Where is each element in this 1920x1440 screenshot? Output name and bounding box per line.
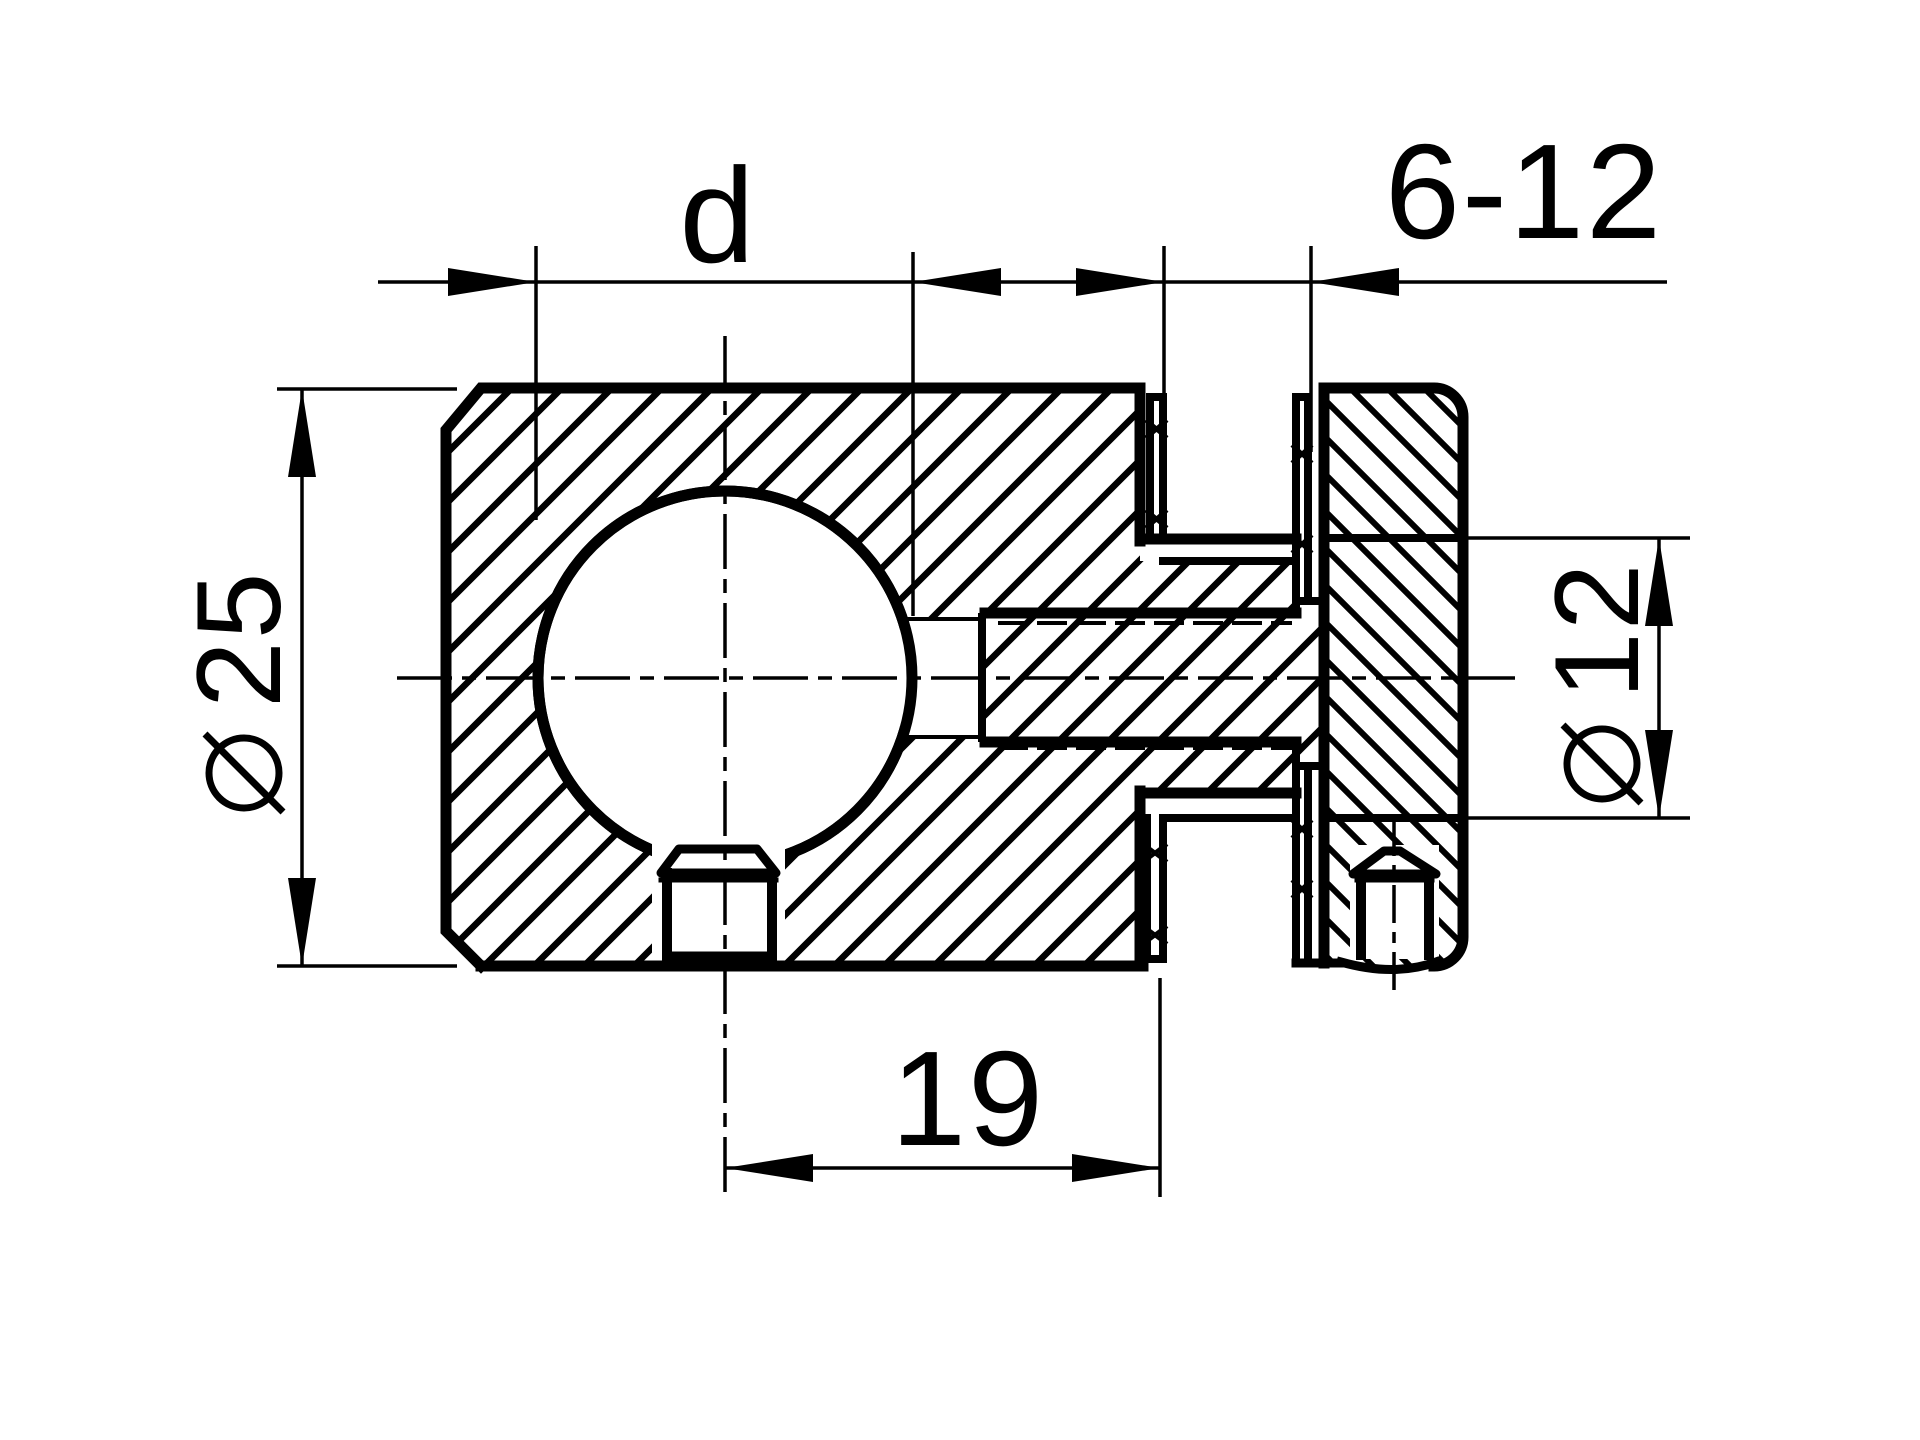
diameter-symbol-icon [1563, 725, 1641, 803]
dim-value-25: 25 [172, 571, 306, 708]
engineering-drawing-page: d 6-12 19 25 12 [0, 0, 1920, 1440]
dim-label-body-diameter: 25 [172, 571, 306, 812]
diameter-symbol-icon [205, 734, 283, 812]
dim-label-rod-diameter: 12 [1530, 562, 1664, 803]
dim-label-bore-d: d [679, 140, 756, 291]
dim-label-offset-19: 19 [891, 1023, 1045, 1174]
cross-clamp-section-drawing: d 6-12 19 25 12 [0, 0, 1920, 1440]
dim-label-clamp-range: 6-12 [1385, 116, 1663, 267]
dim-value-12: 12 [1530, 562, 1664, 699]
